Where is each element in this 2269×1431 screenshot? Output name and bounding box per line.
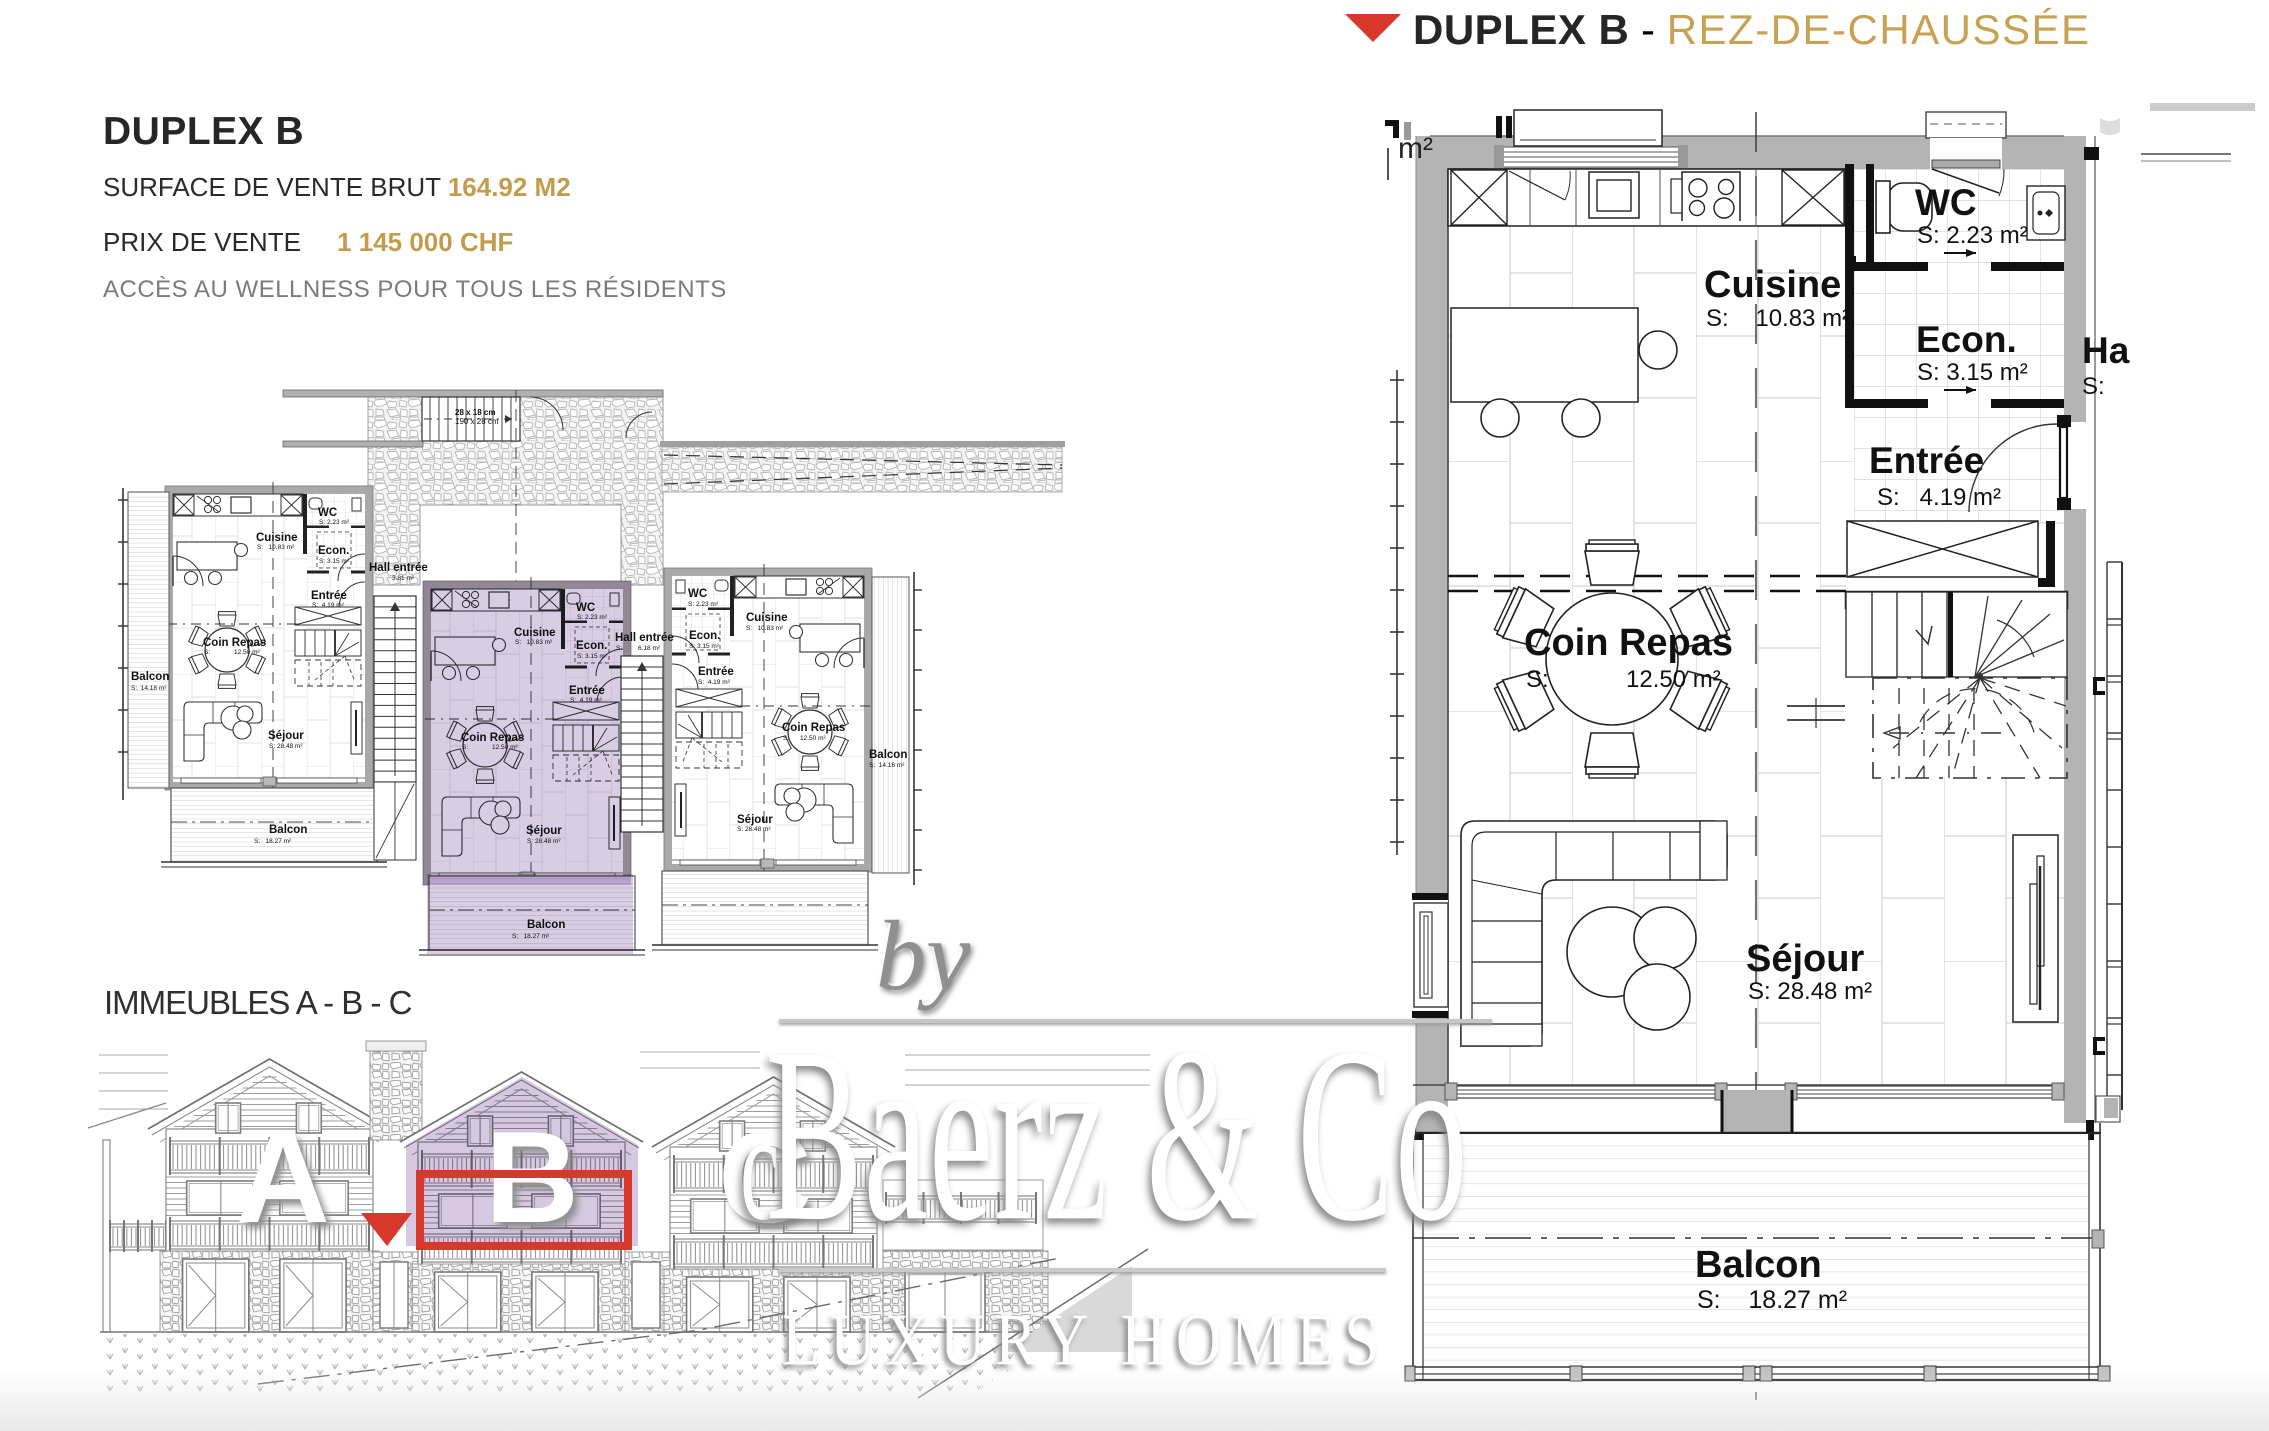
svg-text:S:: S: [204, 649, 210, 656]
svg-text:S:: S: [783, 735, 789, 742]
svg-text:12.50 m²: 12.50 m² [1626, 666, 1721, 693]
svg-text:3.81 m²: 3.81 m² [392, 575, 415, 582]
svg-text:Balcon: Balcon [869, 749, 907, 761]
svg-text:C: C [718, 1104, 812, 1250]
svg-text:S: 4.19 m²: S: 4.19 m² [698, 679, 731, 686]
svg-text:S: 3.15 m²: S: 3.15 m² [689, 643, 720, 650]
svg-text:S: 28.48 m²: S: 28.48 m² [737, 826, 771, 833]
svg-text:Hall entrée: Hall entrée [369, 562, 428, 574]
svg-text:S: 10.83 m²: S: 10.83 m² [1706, 305, 1850, 332]
svg-text:S: 10.83 m²: S: 10.83 m² [746, 625, 784, 632]
svg-text:Entrée: Entrée [698, 666, 734, 678]
svg-text:Econ.: Econ. [689, 630, 720, 642]
svg-text:S: 3.15 m²: S: 3.15 m² [1917, 359, 2028, 386]
svg-text:12.50 m²: 12.50 m² [800, 735, 826, 742]
svg-text:Hall entrée: Hall entrée [615, 632, 674, 644]
svg-text:S: 2.23 m²: S: 2.23 m² [688, 601, 719, 608]
svg-text:S: 2.23 m²: S: 2.23 m² [1917, 222, 2028, 249]
svg-text:S: 28.48 m²: S: 28.48 m² [269, 743, 303, 750]
svg-text:Coin Repas: Coin Repas [1524, 622, 1733, 664]
svg-text:S: 10.83 m²: S: 10.83 m² [257, 544, 295, 551]
svg-text:WC: WC [1915, 182, 1977, 223]
svg-text:Econ.: Econ. [318, 545, 349, 557]
svg-text:WC: WC [318, 507, 337, 519]
svg-text:m²: m² [1398, 132, 1433, 165]
svg-text:Séjour: Séjour [1746, 938, 1864, 980]
svg-text:Séjour: Séjour [737, 814, 773, 826]
svg-text:S: 2.23 m²: S: 2.23 m² [319, 519, 350, 526]
svg-text:Balcon: Balcon [131, 671, 169, 683]
svg-text:WC: WC [688, 588, 707, 600]
svg-text:Balcon: Balcon [269, 824, 307, 836]
svg-text:6.18 m²: 6.18 m² [638, 645, 661, 652]
svg-text:S:: S: [2082, 373, 2105, 400]
svg-text:Coin Repas: Coin Repas [203, 637, 266, 649]
svg-text:A: A [236, 1104, 330, 1250]
svg-text:S:: S: [1526, 666, 1549, 693]
svg-text:S: 3.15 m²: S: 3.15 m² [319, 558, 350, 565]
svg-text:S: 14.18 m²: S: 14.18 m² [131, 685, 167, 692]
svg-text:Entrée: Entrée [311, 590, 347, 602]
svg-text:Cuisine: Cuisine [1704, 264, 1841, 306]
svg-text:Cuisine: Cuisine [746, 612, 788, 624]
svg-text:Balcon: Balcon [1695, 1244, 1822, 1286]
svg-text:190 x 28 cm: 190 x 28 cm [455, 417, 499, 426]
svg-text:Coin Repas: Coin Repas [782, 722, 845, 734]
svg-text:12.50 m²: 12.50 m² [234, 649, 260, 656]
svg-text:S: 4.19 m²: S: 4.19 m² [1877, 484, 2001, 511]
svg-text:Séjour: Séjour [268, 730, 304, 742]
svg-text:28 x 18 cm: 28 x 18 cm [455, 408, 495, 417]
svg-text:S: 4.19 m²: S: 4.19 m² [312, 602, 345, 609]
svg-text:S: 28.48 m²: S: 28.48 m² [1748, 978, 1872, 1005]
svg-text:Econ.: Econ. [1916, 319, 2017, 360]
svg-text:Ha: Ha [2082, 330, 2130, 371]
svg-text:S:: S: [616, 645, 622, 652]
svg-text:Cuisine: Cuisine [256, 532, 298, 544]
svg-text:Entrée: Entrée [1869, 440, 1984, 481]
svg-text:S: 18.27 m²: S: 18.27 m² [254, 838, 292, 845]
svg-text:S: 18.27 m²: S: 18.27 m² [1697, 1286, 1847, 1314]
svg-text:S: 14.16 m²: S: 14.16 m² [869, 762, 905, 769]
